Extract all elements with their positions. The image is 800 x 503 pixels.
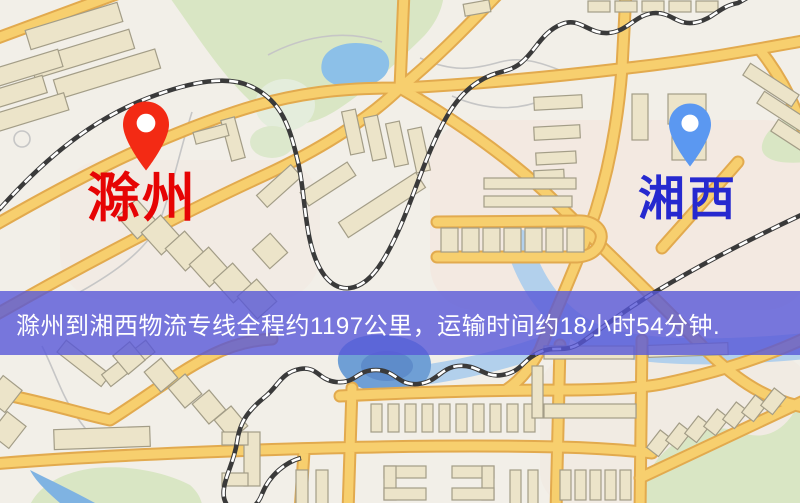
destination-label: 湘西 (638, 176, 738, 225)
route-banner: 滁州到湘西物流专线全程约1197公里，运输时间约18小时54分钟. (0, 291, 800, 355)
map-canvas[interactable] (0, 0, 800, 503)
map-view: 滁州 湘西 滁州到湘西物流专线全程约1197公里，运输时间约18小时54分钟. (0, 0, 800, 503)
route-banner-text: 滁州到湘西物流专线全程约1197公里，运输时间约18小时54分钟. (16, 306, 720, 341)
origin-label: 滁州 (87, 172, 197, 228)
map-pin-icon (669, 103, 711, 167)
origin-pin[interactable] (123, 100, 169, 172)
destination-pin[interactable] (669, 103, 711, 167)
map-pin-icon (123, 100, 169, 172)
